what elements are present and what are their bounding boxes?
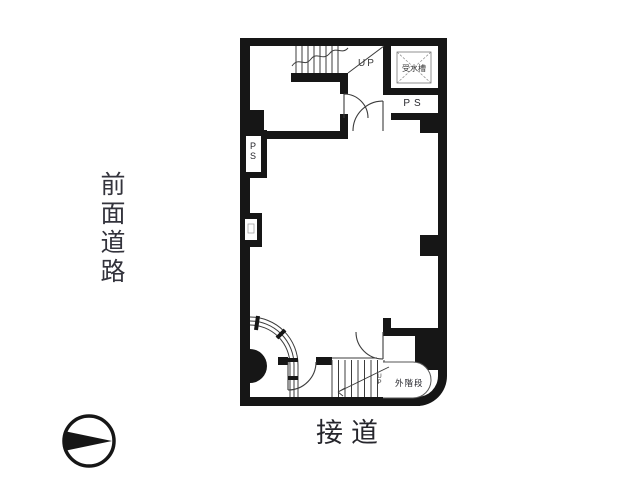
external-stairs-label: 外階段 [395, 377, 424, 389]
pipe-space-left-char-p: P [250, 141, 256, 151]
wall-stub-entry-left [278, 357, 288, 365]
external-stairs-up-char-p: P [377, 380, 381, 386]
mullion-1 [256, 316, 258, 330]
wall-under-stairs [291, 73, 348, 82]
front-road-label: 前面道路 [92, 171, 128, 287]
small-shaft-inner [245, 219, 257, 240]
compass-icon [64, 416, 114, 466]
pipe-space-left-char-s: S [250, 151, 256, 161]
stairs-up-label: UP [358, 58, 376, 69]
external-stairs-up-label: U P [376, 374, 383, 386]
pillar-right-upper [420, 113, 438, 133]
wall-tank-bottom [383, 88, 447, 95]
wall-hall-vert-upper [340, 73, 348, 94]
wall-tank-left [383, 46, 391, 92]
half-round-column [250, 349, 267, 383]
water-tank-label: 受水槽 [395, 63, 433, 74]
pillar-left [240, 110, 264, 131]
stair-treads [296, 46, 338, 73]
pipe-space-left-label: P S [246, 141, 260, 161]
floor-plan-page: 前面道路 接道 UP 受水槽 PS P S U P 外階段 [0, 0, 640, 480]
wall-stub-entry-right [316, 357, 332, 365]
wall-ps-bottom [391, 113, 447, 120]
door-bottom-right [356, 332, 383, 359]
compass-needle [64, 431, 112, 451]
pipe-space-top-label: PS [392, 98, 436, 109]
pillar-right-mid [420, 235, 438, 256]
wall-top [240, 38, 447, 46]
road-label: 接道 [316, 411, 386, 450]
entrance-corner [250, 316, 298, 397]
